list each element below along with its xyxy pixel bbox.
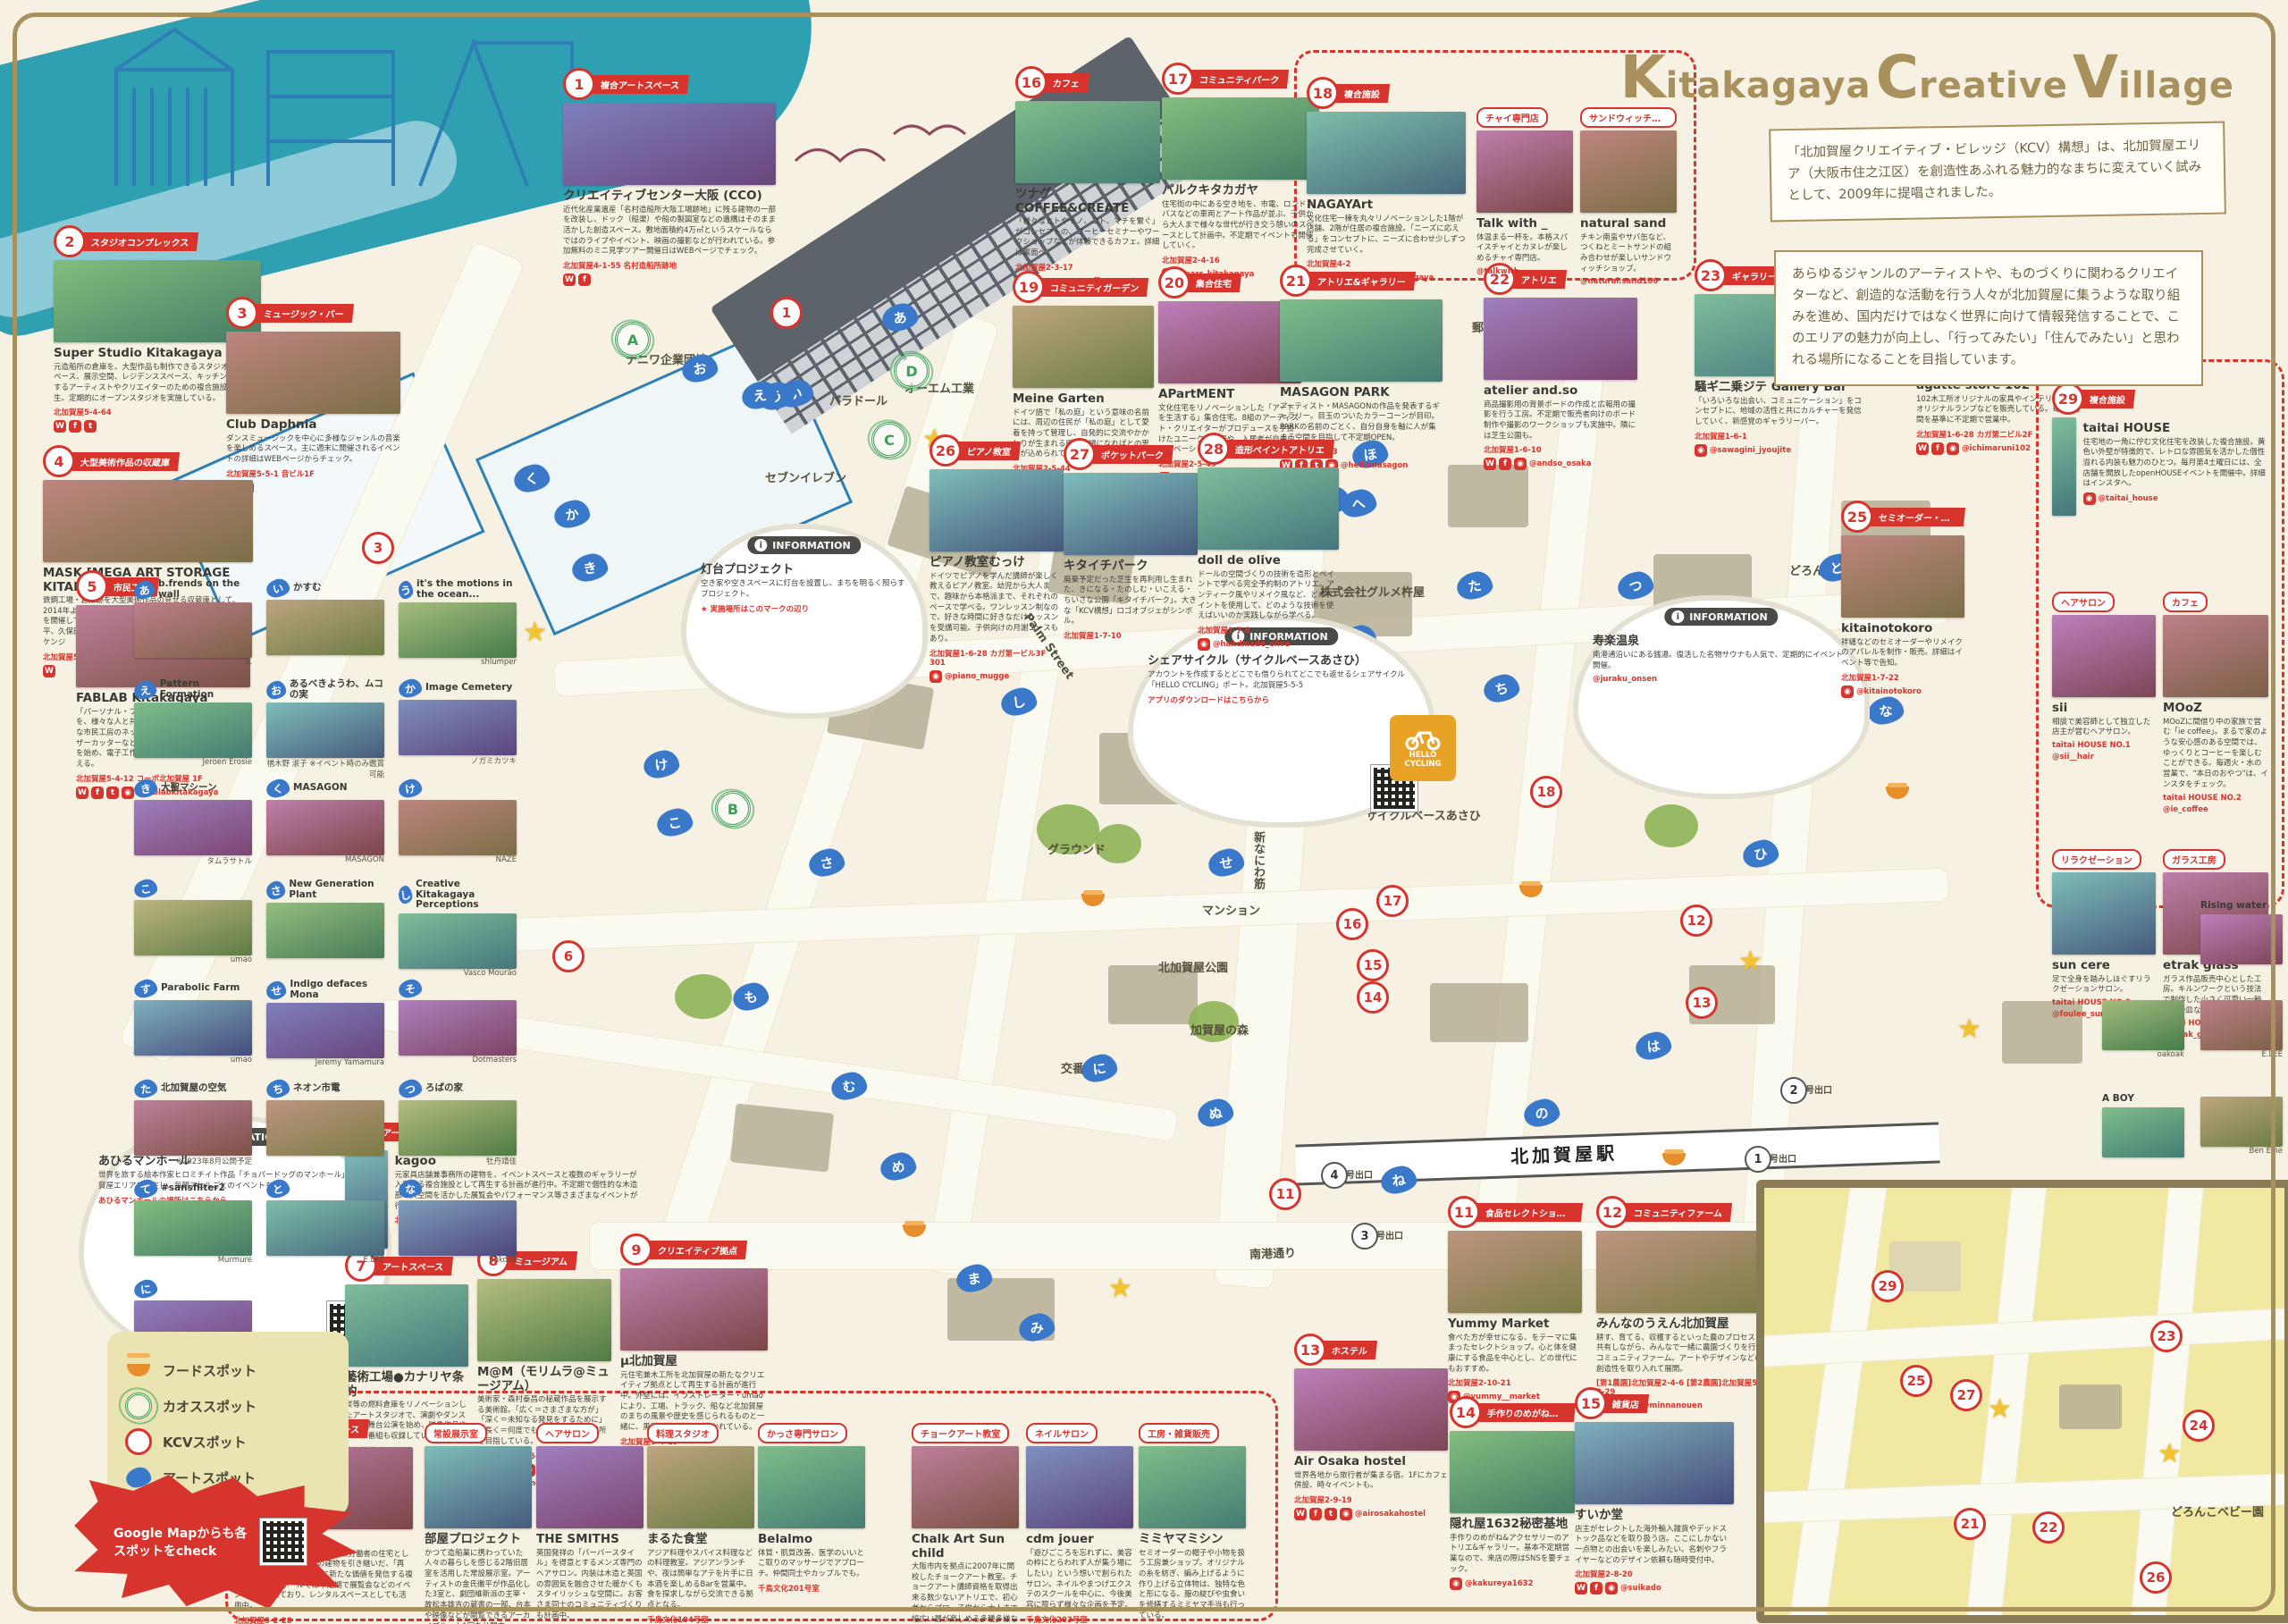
- station-exit-2: 2: [1780, 1077, 1807, 1104]
- poi-name: Club Daphnia: [226, 418, 400, 433]
- station-exit-label: 号出口: [1346, 1167, 1373, 1181]
- poi-name: クリエイティブセンター大阪 (CCO): [563, 189, 776, 204]
- art-spot-card: しCreative Kitakagaya PerceptionsVasco Mo…: [399, 879, 517, 978]
- map-label: グラウンド: [1047, 840, 1106, 857]
- artwork-photo: [134, 602, 252, 658]
- poi-category-tag: 複合施設: [2078, 390, 2135, 408]
- artwork-photo: [266, 903, 384, 958]
- art-spot-marker: た: [1455, 569, 1494, 601]
- map-label: セブンイレブン: [765, 468, 846, 485]
- website-icon[interactable]: W: [1294, 1508, 1307, 1520]
- instagram-handle[interactable]: @piano_mugge: [945, 672, 1009, 681]
- legend-item: フードスポット: [125, 1357, 331, 1384]
- art-spot-card: いかすむ: [266, 579, 384, 655]
- artwork-title: ネオン市電: [293, 1083, 341, 1094]
- poi-description: 袢纏などのセミオーダーやリメイクのアパレルを制作・販売。詳細はイベント等で告知。: [1841, 638, 1964, 669]
- poi-category-tag: アトリエ&ギャラリー: [1306, 272, 1416, 290]
- art-spot-kana-marker: た: [133, 1078, 159, 1098]
- poi-card-13: 13ホステルAir Osaka hostel世界各地から旅行者が集まる宿。1Fに…: [1294, 1334, 1448, 1520]
- food-bowl-icon: [125, 1357, 152, 1384]
- instagram-icon[interactable]: ◉: [1695, 444, 1707, 457]
- google-map-qr-code[interactable]: [260, 1519, 307, 1565]
- poi-name: 隠れ屋1632秘密基地: [1450, 1518, 1575, 1532]
- poi-photo: [1015, 101, 1160, 183]
- kcv-spot-number-badge: 16: [1015, 66, 1047, 98]
- artist-credit: ノガミカツキ: [399, 755, 517, 766]
- artwork-title: MASAGON: [293, 783, 348, 794]
- kcv-spot-icon: [125, 1428, 152, 1455]
- facebook-icon[interactable]: f: [91, 787, 104, 799]
- poi-address: 千鳥文化104号室: [647, 1614, 754, 1624]
- poi-description: 足で全身を踏みしほぐすリラクゼーションサロン。: [2052, 975, 2156, 996]
- kcv-map-marker-18: 18: [1530, 776, 1562, 808]
- map-label: マンション: [1202, 901, 1260, 918]
- inset-kcv-marker-23: 23: [2150, 1320, 2183, 1352]
- taitai-tenant-sun cere: リラクゼーションsun cere足で全身を踏みしほぐすリラクゼーションサロン。t…: [2052, 849, 2156, 1019]
- inset-kcv-marker-29: 29: [1872, 1270, 1904, 1302]
- poi-category-tag: ヘアサロン: [2052, 592, 2115, 612]
- instagram-icon[interactable]: ◉: [1340, 1508, 1352, 1520]
- poi-photo: [912, 1446, 1019, 1528]
- kcv-spot-number-badge: 15: [1575, 1387, 1607, 1419]
- poi-description: 耕す、育てる、収穫するといった農のプロセスを共有しながら、みんなで一緒に農園づく…: [1596, 1334, 1766, 1376]
- artwork-title: 北加賀屋の空気: [161, 1083, 227, 1094]
- facebook-icon[interactable]: f: [1931, 442, 1944, 455]
- poi-category-tag: かっさ専門サロン: [758, 1423, 847, 1443]
- poi-category-tag: コミュニティファーム: [1622, 1203, 1732, 1222]
- chidori-tenant-cdm jouer: ネイルサロンcdm jouer「遊びごころを忘れずに、美容の枠にとらわれず人が集…: [1026, 1423, 1133, 1624]
- instagram-handle[interactable]: @sii__hair: [2052, 753, 2094, 762]
- website-icon[interactable]: W: [1484, 458, 1496, 470]
- map-label: 新なにわ筋: [1249, 831, 1266, 889]
- poi-photo: [345, 1284, 468, 1367]
- art-spot-kana-marker: う: [398, 580, 415, 600]
- bicycle-icon: [1405, 728, 1441, 751]
- poi-address: 北加賀屋1-7-22: [1841, 672, 1964, 683]
- poi-description: 商品撮影用の背景ボードの作成と広報用の撮影を行う工房。不定期で販売者向けのボード…: [1484, 400, 1637, 442]
- information-cta: アプリのダウンロードはこちらから: [1148, 694, 1416, 705]
- station-exit-3: 3: [1351, 1223, 1378, 1250]
- taitai-tenant-MOoZ: カフェMOoZMOoZに間借り中の家族で営む「ie coffee」。まるで家のよ…: [2163, 592, 2268, 814]
- information-bubble-onsen: iINFORMATION寿楽温泉南港通沿いにある銭湯。復活した名物サウナも人気で…: [1573, 595, 1870, 799]
- poi-photo: [1064, 473, 1198, 555]
- artwork-title: Indigo defaces Mona: [290, 980, 384, 1000]
- poi-category-tag: ガラス工房: [2163, 849, 2225, 870]
- poi-category-tag: チョークアート教室: [912, 1423, 1009, 1443]
- kcv-spot-number-badge: 13: [1294, 1334, 1326, 1366]
- instagram-handle[interactable]: @taitai_house: [2099, 494, 2158, 503]
- shipyard-crane-illustration: [98, 16, 599, 204]
- poi-card-12: 12コミュニティファームみんなのうえん北加賀屋耕す、育てる、収穫するといった農の…: [1596, 1196, 1766, 1412]
- poi-category-tag: リラクゼーション: [2052, 849, 2141, 870]
- art-spot-marker: に: [1080, 1052, 1119, 1083]
- kcv-map-marker-17: 17: [1376, 885, 1409, 917]
- poi-photo: [1841, 535, 1964, 618]
- inset-kcv-marker-26: 26: [2140, 1561, 2172, 1594]
- art-spot-kana-marker: さ: [265, 879, 287, 900]
- poi-address: 北加賀屋2-9-19: [1294, 1494, 1448, 1505]
- poi-card-16: 16カフェツナグ COFFEE&CREATE「様々なヒトやモノ、コト、マチを繋ぐ…: [1015, 66, 1160, 288]
- instagram-handle[interactable]: @airosakahostel: [1355, 1510, 1426, 1519]
- art-spot-kana-marker: す: [133, 978, 159, 998]
- poi-card-18: 18複合施設NAGAYArt文化住宅一棟を丸々リノベーションした1階が店舗、2階…: [1307, 77, 1466, 284]
- poi-address: 千鳥文化201号室: [758, 1583, 865, 1594]
- inset-detail-map: ★ ★ どろんこベビー園 2925272122232426: [1756, 1180, 2288, 1623]
- page-title: Kitakagaya Creative Village: [1619, 43, 2234, 112]
- poi-address: 北加賀屋2-10-21: [1448, 1377, 1582, 1388]
- poi-card-1: 1複合アートスペースクリエイティブセンター大阪 (CCO)近代化産業遺産「名村造…: [563, 68, 776, 286]
- chaos-spot-icon: [125, 1393, 152, 1419]
- instagram-icon[interactable]: ◉: [1605, 1582, 1618, 1595]
- kcv-spot-number-badge: 9: [620, 1233, 652, 1266]
- poi-address: 北加賀屋1-6-10: [1484, 444, 1637, 455]
- poi-category-tag: ヘアサロン: [536, 1423, 599, 1443]
- chaos-spot-marker-A: A: [615, 322, 651, 358]
- poi-category-tag: クリエイティブ拠点: [646, 1241, 747, 1259]
- chidori-tenant-Chalk Art Sun child: チョークアート教室Chalk Art Sun child大阪市内を拠点に2007…: [912, 1423, 1019, 1624]
- facebook-icon[interactable]: f: [578, 273, 591, 286]
- website-icon[interactable]: W: [43, 665, 55, 677]
- poi-name: みんなのうえん北加賀屋: [1596, 1317, 1766, 1332]
- information-cta: ★ 実施場所はこのマークの辺り: [701, 603, 908, 614]
- instagram-icon[interactable]: ◉: [1450, 1578, 1462, 1590]
- art-spot-card: こumao: [134, 879, 252, 964]
- art-spot-card: くMASAGONMASAGON: [266, 779, 384, 864]
- inset-label: どろんこベビー園: [2171, 1502, 2264, 1519]
- artist-credit: oakoak: [399, 1256, 517, 1265]
- poi-description: かつて造船業に携わっていた人々の暮らしを感じる2階旧居室を活用した常設展示室。ア…: [425, 1549, 532, 1624]
- art-spot-card: おあるべきようわ、ムコの実楢木野 淑子 ※イベント時のみ鑑賞可能: [266, 679, 384, 779]
- poi-category-tag: 複合アートスペース: [589, 75, 689, 94]
- kcv-map-marker-14: 14: [1357, 981, 1389, 1014]
- facebook-icon[interactable]: f: [69, 420, 81, 433]
- website-icon[interactable]: W: [1575, 1582, 1587, 1595]
- art-spot-kana-marker: お: [265, 679, 287, 700]
- artwork-title: かすむ: [293, 583, 322, 593]
- poi-description: ドールの空間づくりの技術を造形とペイントで学べる完全予約制のアトリエ。アンティー…: [1198, 570, 1339, 623]
- poi-name: THE SMITHS: [536, 1533, 643, 1547]
- poi-address: 北加賀屋1-7-10: [1064, 630, 1198, 641]
- art-spot-card: そDotmasters: [399, 980, 517, 1064]
- kcv-spot-number-badge: 19: [1013, 271, 1045, 303]
- poi-photo: [43, 480, 253, 562]
- art-spot-marker: け: [642, 748, 681, 779]
- poi-description: MOoZに間借り中の家族で営む「ie coffee」。まるで家のような安心感のあ…: [2163, 718, 2268, 791]
- station-exit-label: 号出口: [1770, 1151, 1796, 1165]
- kcv-map-marker-6: 6: [552, 940, 585, 972]
- poi-photo: [1280, 299, 1443, 382]
- art-spot-card: さNew Generation Plant: [266, 879, 384, 958]
- food-spot-marker: [1886, 787, 1909, 799]
- poi-category-tag: カフェ: [1041, 73, 1089, 92]
- poi-name: Talk with _: [1476, 217, 1573, 231]
- nagayart-tenant-Talk with _: チャイ専門店Talk with _体温まる一杯を。本格スパイスチャイとカヌレが楽…: [1476, 107, 1573, 276]
- poi-description: 世界各地から旅行者が集まる宿。1Fにカフェ併設、時々イベントも。: [1294, 1471, 1448, 1492]
- poi-photo: [1596, 1231, 1766, 1313]
- google-map-note-text: Google Mapからも各スポットをcheck: [114, 1524, 248, 1560]
- artwork-photo: [266, 800, 384, 855]
- poi-category-tag: 大型美術作品の収蔵庫: [69, 452, 180, 471]
- poi-photo: [758, 1446, 865, 1528]
- website-icon[interactable]: W: [1916, 442, 1929, 455]
- artist-credit: E.LEE: [266, 1256, 384, 1265]
- chaos-spot-marker-D: D: [894, 353, 929, 389]
- inset-kcv-marker-22: 22: [2032, 1511, 2065, 1544]
- art-spot-kana-marker: ち: [265, 1078, 291, 1098]
- art-spot-card: えPattern FormationJeroen Erosie: [134, 679, 252, 767]
- instagram-handle[interactable]: @handmade_olive: [1213, 640, 1290, 649]
- poi-category-tag: 複合施設: [1333, 84, 1390, 103]
- instagram-icon[interactable]: ◉: [1841, 686, 1854, 698]
- information-title: 寿楽温泉: [1593, 631, 1850, 648]
- poi-photo: [1476, 130, 1573, 213]
- poi-description: 大阪市内を拠点に2007年に開校したチョークアート教室。チョークアート講師資格を…: [912, 1562, 1019, 1624]
- art-spot-kana-marker: て: [133, 1178, 159, 1199]
- poi-card-15: 15雑貨店すいか堂店主がセレクトした海外輸入雑貨やデッドストック品などを取り扱う…: [1575, 1387, 1734, 1595]
- information-cta: @juraku_onsen: [1593, 675, 1850, 684]
- art-spot-kana-marker: と: [265, 1178, 291, 1199]
- artwork-title: it's the motions in the ocean...: [416, 579, 517, 600]
- poi-category-tag: ポケットパーク: [1089, 445, 1173, 464]
- kcv-spot-number-badge: 18: [1307, 77, 1339, 109]
- poi-photo: [620, 1268, 768, 1351]
- website-icon[interactable]: W: [563, 273, 576, 286]
- kcv-map-marker-15: 15: [1357, 949, 1389, 981]
- art-spot-card: き大聖マシーンタムラサトル: [134, 779, 252, 866]
- poi-description: 英国発祥の「バーバースタイル」を得意とするメンズ専門のヘアサロン。内装は木造と英…: [536, 1549, 643, 1622]
- poi-photo: [1575, 1422, 1734, 1504]
- poi-address: 千鳥文化203号室: [1026, 1614, 1133, 1624]
- art-spot-card: けNAZE: [399, 779, 517, 864]
- instagram-handle[interactable]: @talkwith__: [1476, 267, 1527, 276]
- kcv-map-marker-16: 16: [1336, 908, 1368, 940]
- poi-card-26: 26ピアノ教室ピアノ教室むっけドイツでピアノを学んだ講師が楽しく教えるピアノ教室…: [929, 434, 1064, 683]
- chaos-spot-marker-B: B: [715, 791, 751, 827]
- poi-address: 北加賀屋1-7-8: [1198, 625, 1339, 635]
- art-spot-card: ちネオン市電: [266, 1080, 384, 1156]
- art-spot-marker: め: [879, 1150, 918, 1182]
- kcv-spot-number-badge: 14: [1450, 1396, 1482, 1428]
- facebook-icon[interactable]: f: [1309, 1508, 1322, 1520]
- artwork-photo: [399, 800, 517, 855]
- artwork-photo: [266, 600, 384, 655]
- artwork-photo: [134, 900, 252, 955]
- instagram-handle[interactable]: @andso_osaka: [1529, 459, 1592, 468]
- kcv-spot-number-badge: 26: [929, 434, 962, 467]
- poi-category-tag: 手作りのめがね&アクセサリー: [1476, 1403, 1576, 1422]
- poi-photo: [1294, 1368, 1448, 1451]
- artwork-title: Pattern Formation: [160, 679, 252, 700]
- art-spot-card: せIndigo defaces MonaJeremy Yamamura: [266, 980, 384, 1067]
- art-spot-kana-marker: あ: [133, 579, 156, 600]
- kcv-spot-number-badge: 1: [563, 68, 595, 100]
- art-spot-card: E.LEE: [2200, 997, 2283, 1059]
- inset-kcv-marker-25: 25: [1900, 1365, 1932, 1397]
- poi-name: MASAGON PARK: [1280, 386, 1443, 400]
- twitter-icon[interactable]: t: [106, 787, 119, 799]
- inset-kcv-marker-24: 24: [2183, 1409, 2215, 1442]
- map-label: 交番: [1061, 1059, 1084, 1076]
- poi-photo: [226, 332, 400, 414]
- art-spot-card: た北加賀屋の空気※2023年8月公開予定: [134, 1080, 252, 1166]
- poi-name: sun cere: [2052, 959, 2156, 973]
- instagram-icon[interactable]: ◉: [122, 787, 134, 799]
- poi-category-tag: チャイ専門店: [1476, 107, 1548, 128]
- instagram-handle[interactable]: @kakureya1632: [1465, 1579, 1533, 1588]
- poi-name: sii: [2052, 702, 2156, 716]
- poi-photo: [2052, 872, 2156, 955]
- facebook-icon[interactable]: f: [1499, 458, 1511, 470]
- artist-credit: umao: [134, 955, 252, 964]
- kcv-spot-number-badge: 20: [1158, 266, 1190, 299]
- website-icon[interactable]: W: [76, 787, 88, 799]
- poi-card-25: 25セミオーダー・リメイク・アパレルkitainotokoro袢纏などのセミオー…: [1841, 501, 1964, 698]
- art-spot-marker: こ: [655, 806, 694, 837]
- poi-photo: [477, 1279, 611, 1361]
- instagram-icon[interactable]: ◉: [1198, 638, 1210, 651]
- information-bubble-lighthouse: iINFORMATION灯台プロジェクト空き家や空きスペースに灯台を設置し、まち…: [681, 524, 928, 719]
- kcv-spot-number-badge: 12: [1596, 1196, 1628, 1228]
- kcv-spot-number-badge: 5: [76, 570, 108, 602]
- art-spot-card: Ben Eine: [2200, 1094, 2283, 1156]
- poi-name: Air Osaka hostel: [1294, 1455, 1448, 1469]
- instagram-handle[interactable]: @natural.sand106: [1580, 277, 1658, 286]
- poi-card-14: 14手作りのめがね&アクセサリー隠れ屋1632秘密基地手作りのめがね&アクセサリ…: [1450, 1396, 1575, 1590]
- information-header: iINFORMATION: [1664, 608, 1778, 626]
- art-spot-card: て#sansfilter2Murmure: [134, 1180, 252, 1265]
- art-spot-kana-marker: し: [398, 885, 414, 905]
- chidori-tenant-THE SMITHS: ヘアサロンTHE SMITHS英国発祥の「バーバースタイル」を得意とするメンズ専…: [536, 1423, 643, 1624]
- artist-credit: Murmure: [134, 1256, 252, 1265]
- poi-photo: [929, 469, 1064, 551]
- artwork-title: b.frends on the wall: [158, 579, 252, 600]
- facebook-icon[interactable]: f: [1590, 1582, 1602, 1595]
- poi-photo: [536, 1446, 643, 1528]
- poi-description: 体温まる一杯を。本格スパイスチャイとカヌレが楽しめるチャイ専門店。: [1476, 233, 1573, 265]
- artwork-photo: [399, 700, 517, 755]
- kitakagaya-creative-village-map: Kitakagaya Creative Village 「北加賀屋クリエイティブ…: [0, 0, 2288, 1624]
- poi-name: すいか堂: [1575, 1509, 1734, 1523]
- art-spot-kana-marker: せ: [265, 980, 288, 1000]
- artwork-title: Parabolic Farm: [161, 983, 240, 994]
- twitter-icon[interactable]: t: [84, 420, 97, 433]
- art-spot-card: すParabolic Farmumao: [134, 980, 252, 1064]
- poi-description: 「遊びごころを忘れずに、美容の枠にとらわれず人が集う場にしたい」という想いで創ら…: [1026, 1549, 1133, 1611]
- instagram-handle[interactable]: @kitainotokoro: [1856, 687, 1922, 696]
- art-spot-kana-marker: く: [265, 778, 291, 798]
- information-body: 南港通沿いにある銭湯。復活した名物サウナも人気で、定期的にイベント開催。: [1593, 651, 1850, 672]
- poi-category-tag: カフェ: [2163, 592, 2208, 612]
- poi-category-tag: 雑貨店: [1601, 1394, 1649, 1413]
- artist-credit: shlumper: [399, 658, 517, 667]
- poi-category-tag: セミオーダー・リメイク・アパレル: [1867, 508, 1965, 526]
- poi-description: 店主がセレクトした海外輸入雑貨やデッドストック品などを取り扱う店。ここにしかない…: [1575, 1525, 1734, 1567]
- poi-address: 北加賀屋1-6-28 カガ第一ビル3F 301: [929, 648, 1064, 668]
- poi-category-tag: ネイルサロン: [1026, 1423, 1098, 1443]
- poi-category-tag: ホステル: [1320, 1341, 1377, 1359]
- kcv-spot-number-badge: 25: [1841, 501, 1873, 533]
- instagram-icon[interactable]: ◉: [929, 670, 942, 683]
- legend-label: KCVスポット: [163, 1433, 247, 1452]
- instagram-handle[interactable]: @ie_coffee: [2163, 805, 2208, 814]
- star-marker: ★: [1108, 1273, 1132, 1304]
- kcv-spot-number-badge: 2: [54, 225, 86, 257]
- information-title: シェアサイクル（サイクルベースあさひ）: [1148, 651, 1416, 668]
- poi-name: natural sand: [1580, 217, 1677, 231]
- poi-name: まるた食堂: [647, 1533, 754, 1547]
- artist-credit: Dotmasters: [399, 1056, 517, 1064]
- kcv-spot-number-badge: 21: [1280, 265, 1312, 297]
- artist-credit: Jeroen Erosie: [134, 758, 252, 767]
- poi-category-tag: 料理スタジオ: [647, 1423, 719, 1443]
- station-label: 北加賀屋駅: [1510, 1139, 1619, 1168]
- poi-photo: [1448, 1231, 1582, 1313]
- poi-photo: [1139, 1446, 1246, 1528]
- artwork-photo: [266, 1003, 384, 1058]
- art-spot-marker: の: [1522, 1097, 1561, 1128]
- instagram-handle[interactable]: @ichimaruni102: [1962, 444, 2031, 453]
- poi-photo: [1484, 298, 1637, 380]
- art-spot-card: とE.LEE: [266, 1180, 384, 1265]
- poi-category-tag: 集合住宅: [1184, 273, 1241, 292]
- instagram-handle[interactable]: @sawagini_jyoujite: [1710, 446, 1791, 455]
- poi-photo: [563, 103, 776, 185]
- poi-name: ピアノ教室むっけ: [929, 556, 1064, 570]
- artist-credit: 楢木野 淑子 ※イベント時のみ鑑賞可能: [266, 758, 384, 779]
- artist-credit: b.: [134, 658, 252, 667]
- poi-photo: [1013, 306, 1154, 388]
- intro-box-2: あらゆるジャンルのアーティストや、ものづくりに関わるクリエイターなど、創造的な活…: [1774, 250, 2203, 386]
- artwork-photo: [134, 800, 252, 855]
- instagram-handle[interactable]: @hellomasagon: [1341, 461, 1408, 470]
- hello-cycling-label: HELLO CYCLING: [1390, 751, 1456, 769]
- inset-kcv-marker-21: 21: [1954, 1508, 1986, 1540]
- artwork-title: Image Cemetery: [425, 683, 512, 694]
- poi-name: キタイチパーク: [1064, 560, 1198, 574]
- twitter-icon[interactable]: t: [1325, 1508, 1337, 1520]
- instagram-icon[interactable]: ◉: [1947, 442, 1959, 455]
- poi-name: atelier and.so: [1484, 384, 1637, 399]
- poi-name: ミミヤマミシン: [1139, 1533, 1246, 1547]
- poi-card-22: 22アトリエatelier and.so商品撮影用の背景ボードの作成と広報用の撮…: [1484, 263, 1637, 470]
- instagram-handle[interactable]: @suikado: [1620, 1584, 1661, 1593]
- instagram-icon[interactable]: ◉: [1514, 458, 1527, 470]
- instagram-icon[interactable]: ◉: [2083, 492, 2096, 505]
- station-exit-label: 号出口: [1805, 1082, 1832, 1096]
- kcv-map-marker-1: 1: [770, 297, 803, 329]
- artwork-title: New Generation Plant: [289, 879, 384, 900]
- art-spot-card: あb.frends on the wallb.: [134, 579, 252, 667]
- artwork-title: あるべきようわ、ムコの実: [290, 679, 384, 700]
- artwork-photo: [134, 1200, 252, 1256]
- artwork-photo: [266, 1100, 384, 1156]
- poi-description: 「様々なヒトやモノ、コト、マチを繋ぐ」がコンセプトの、コーヒーセミナーやワークシ…: [1015, 217, 1160, 259]
- poi-description: セミオーダーの帽子や小物を扱う工房兼ショップ。オリジナルの糸を紡ぎ、編み上げるよ…: [1139, 1549, 1246, 1622]
- poi-category-tag: コミュニティガーデン: [1039, 278, 1149, 297]
- poi-address: 北加賀屋5-2-28: [234, 1615, 413, 1624]
- kcv-spot-number-badge: 3: [226, 297, 258, 329]
- art-spot-card: かImage Cemeteryノガミカツキ: [399, 679, 517, 766]
- poi-description: ドイツでピアノを学んだ講師が楽しく教えるピアノ教室。幼児から大人まで、趣味から本…: [929, 572, 1064, 645]
- poi-name: kitainotokoro: [1841, 622, 1964, 636]
- artwork-photo: [134, 1100, 252, 1156]
- website-icon[interactable]: W: [54, 420, 66, 433]
- intro-box-1: 「北加賀屋クリエイティブ・ビレッジ（KCV）構想」は、北加賀屋エリア（大阪市住之…: [1769, 122, 2226, 223]
- poi-name: MOoZ: [2163, 702, 2268, 716]
- chidori-tenant-ミミヤマミシン: 工房・雑貨販売ミミヤマミシンセミオーダーの帽子や小物を扱う工房兼ショップ。オリジ…: [1139, 1423, 1246, 1624]
- art-spot-marker: せ: [1207, 846, 1246, 878]
- art-spot-kana-marker: い: [265, 577, 291, 598]
